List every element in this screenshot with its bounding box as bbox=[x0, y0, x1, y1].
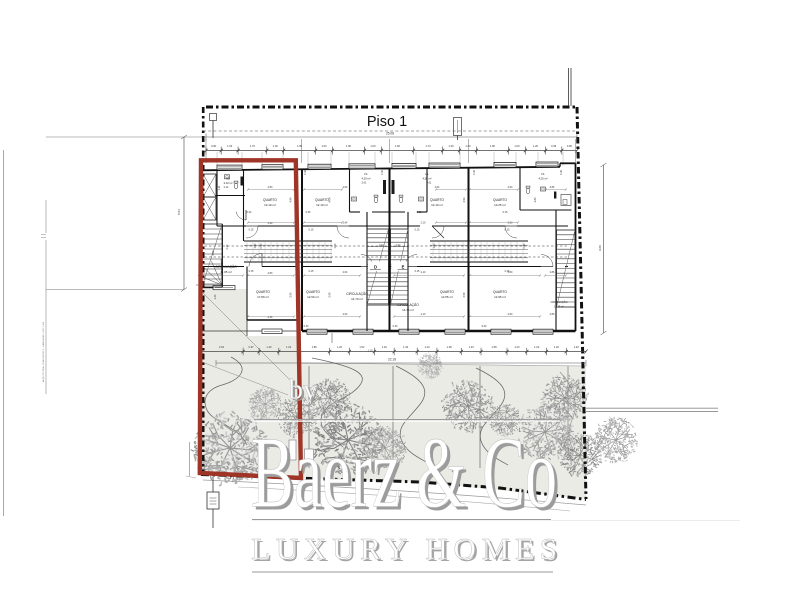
svg-text:I.S.: I.S. bbox=[425, 172, 430, 176]
svg-text:1.90: 1.90 bbox=[254, 243, 257, 248]
svg-text:0.80: 0.80 bbox=[523, 243, 526, 248]
svg-text:2.60: 2.60 bbox=[508, 186, 513, 189]
svg-text:13.10 m²: 13.10 m² bbox=[264, 203, 276, 207]
svg-text:2.83: 2.83 bbox=[268, 272, 273, 275]
svg-text:11.05 m²: 11.05 m² bbox=[220, 270, 232, 274]
svg-text:1.20: 1.20 bbox=[533, 144, 539, 148]
svg-text:3.99: 3.99 bbox=[329, 292, 332, 297]
svg-text:QUARTO: QUARTO bbox=[440, 290, 454, 294]
svg-text:QUARTO: QUARTO bbox=[493, 198, 507, 202]
svg-text:1.20: 1.20 bbox=[212, 250, 215, 255]
svg-text:1.89: 1.89 bbox=[297, 144, 303, 148]
svg-text:0.15: 0.15 bbox=[505, 270, 510, 273]
svg-text:Baerz & Co: Baerz & Co bbox=[251, 417, 557, 530]
svg-text:2.83: 2.83 bbox=[268, 186, 273, 189]
svg-text:QUARTO: QUARTO bbox=[315, 198, 329, 202]
svg-text:ARQUITETURA - PLANTA PISO 1 -: ARQUITETURA - PLANTA PISO 1 - HABITACAO … bbox=[42, 321, 45, 382]
svg-text:2.64: 2.64 bbox=[343, 222, 348, 225]
svg-text:1.20: 1.20 bbox=[425, 345, 431, 349]
svg-text:22.18: 22.18 bbox=[388, 358, 396, 362]
svg-text:E: E bbox=[402, 265, 405, 270]
svg-text:8.01: 8.01 bbox=[177, 209, 181, 215]
svg-text:1.20: 1.20 bbox=[514, 345, 520, 349]
svg-text:1.00: 1.00 bbox=[514, 144, 520, 148]
svg-text:0.15: 0.15 bbox=[415, 270, 420, 273]
svg-text:2.62: 2.62 bbox=[219, 345, 225, 349]
svg-text:1.90: 1.90 bbox=[346, 144, 352, 148]
svg-text:1.00: 1.00 bbox=[465, 144, 471, 148]
svg-text:17.80 m²: 17.80 m² bbox=[257, 295, 269, 299]
svg-text:0.42: 0.42 bbox=[560, 169, 563, 174]
svg-text:2.86: 2.86 bbox=[550, 186, 555, 189]
svg-text:CIRCULAÇÃO: CIRCULAÇÃO bbox=[215, 264, 237, 269]
svg-text:13.10 m²: 13.10 m² bbox=[431, 203, 443, 207]
svg-text:12.60 m²: 12.60 m² bbox=[307, 295, 319, 299]
svg-text:0.30: 0.30 bbox=[393, 325, 398, 328]
svg-text:1.00: 1.00 bbox=[227, 144, 233, 148]
svg-text:0.80: 0.80 bbox=[260, 243, 263, 248]
svg-text:4.20 m²: 4.20 m² bbox=[538, 176, 547, 180]
svg-text:3.90: 3.90 bbox=[290, 292, 293, 297]
svg-text:QUARTO: QUARTO bbox=[306, 290, 320, 294]
svg-text:1.20: 1.20 bbox=[286, 345, 292, 349]
svg-text:9.06: 9.06 bbox=[598, 245, 602, 251]
svg-text:2.42: 2.42 bbox=[226, 244, 229, 249]
svg-text:CIRCULAÇÃO: CIRCULAÇÃO bbox=[397, 302, 419, 307]
svg-text:25.08: 25.08 bbox=[386, 132, 394, 136]
svg-text:0.42: 0.42 bbox=[473, 169, 476, 174]
svg-text:2.64: 2.64 bbox=[343, 313, 348, 316]
svg-text:1.70: 1.70 bbox=[250, 144, 256, 148]
svg-text:0.15: 0.15 bbox=[309, 229, 314, 232]
svg-text:1.00: 1.00 bbox=[273, 144, 279, 148]
svg-text:12.95 m²: 12.95 m² bbox=[494, 295, 506, 299]
svg-text:4.20 m²: 4.20 m² bbox=[422, 176, 431, 180]
svg-text:0.90: 0.90 bbox=[567, 144, 573, 148]
svg-text:1.90: 1.90 bbox=[490, 144, 496, 148]
svg-text:1.11: 1.11 bbox=[218, 185, 221, 190]
svg-text:12.10 m²: 12.10 m² bbox=[316, 203, 328, 207]
svg-text:2.64: 2.64 bbox=[343, 186, 348, 189]
svg-text:2.10: 2.10 bbox=[421, 271, 426, 274]
svg-text:1.20: 1.20 bbox=[337, 345, 343, 349]
svg-text:2.64: 2.64 bbox=[343, 271, 348, 274]
svg-text:0.15: 0.15 bbox=[415, 229, 420, 232]
svg-text:0.15: 0.15 bbox=[505, 229, 510, 232]
svg-text:1.52: 1.52 bbox=[359, 345, 365, 349]
svg-text:1.20: 1.20 bbox=[574, 345, 580, 349]
svg-text:1.20: 1.20 bbox=[214, 294, 217, 299]
svg-text:2.60: 2.60 bbox=[508, 313, 513, 316]
svg-text:0.24: 0.24 bbox=[247, 211, 252, 214]
svg-text:1.20: 1.20 bbox=[469, 345, 475, 349]
svg-text:4.20 m²: 4.20 m² bbox=[361, 176, 370, 180]
svg-text:1.58: 1.58 bbox=[491, 345, 497, 349]
svg-text:13.25 m²: 13.25 m² bbox=[494, 203, 506, 207]
svg-text:1.20: 1.20 bbox=[554, 345, 560, 349]
svg-text:1.90: 1.90 bbox=[334, 243, 337, 248]
svg-text:0.42: 0.42 bbox=[304, 169, 307, 174]
svg-text:Piso 1: Piso 1 bbox=[367, 114, 407, 130]
svg-text:I.S.: I.S. bbox=[364, 172, 369, 176]
svg-text:1.00: 1.00 bbox=[379, 244, 384, 247]
svg-text:by: by bbox=[289, 374, 319, 406]
svg-text:3.10 m²: 3.10 m² bbox=[223, 181, 232, 185]
svg-text:D: D bbox=[374, 265, 377, 270]
svg-text:QUARTO: QUARTO bbox=[430, 198, 444, 202]
svg-text:9.30: 9.30 bbox=[482, 325, 487, 328]
svg-text:1.90: 1.90 bbox=[433, 243, 436, 248]
svg-text:1.48: 1.48 bbox=[447, 345, 453, 349]
svg-text:1.90: 1.90 bbox=[395, 144, 401, 148]
svg-text:1.00: 1.00 bbox=[370, 144, 376, 148]
svg-text:15.35 m²: 15.35 m² bbox=[554, 306, 564, 309]
svg-text:2.86: 2.86 bbox=[550, 313, 555, 316]
svg-text:0.15: 0.15 bbox=[417, 211, 422, 214]
svg-text:3.99: 3.99 bbox=[463, 292, 466, 297]
svg-text:1.00: 1.00 bbox=[449, 144, 455, 148]
svg-text:0.30: 0.30 bbox=[304, 325, 309, 328]
svg-text:4.84: 4.84 bbox=[534, 197, 537, 202]
svg-text:0.97: 0.97 bbox=[249, 345, 255, 349]
svg-text:I.S.: I.S. bbox=[541, 172, 546, 176]
svg-text:0.15: 0.15 bbox=[309, 270, 314, 273]
svg-text:4.84: 4.84 bbox=[290, 197, 293, 202]
svg-text:1.73: 1.73 bbox=[426, 144, 432, 148]
svg-text:0.36: 0.36 bbox=[306, 211, 311, 214]
svg-text:12.65 m²: 12.65 m² bbox=[441, 295, 453, 299]
svg-text:2.61: 2.61 bbox=[362, 181, 367, 184]
svg-text:0.15: 0.15 bbox=[503, 211, 508, 214]
svg-text:14.70 m²: 14.70 m² bbox=[351, 297, 363, 301]
svg-text:4.94: 4.94 bbox=[463, 197, 466, 202]
svg-text:2.64: 2.64 bbox=[435, 186, 440, 189]
svg-text:0.15: 0.15 bbox=[249, 270, 254, 273]
svg-text:4.04: 4.04 bbox=[329, 197, 332, 202]
svg-text:0.15: 0.15 bbox=[249, 229, 254, 232]
svg-text:1.20: 1.20 bbox=[534, 345, 540, 349]
svg-text:1.40: 1.40 bbox=[403, 345, 409, 349]
svg-text:QUARTO: QUARTO bbox=[256, 290, 270, 294]
svg-text:14.76 m²: 14.76 m² bbox=[402, 308, 414, 312]
svg-text:QUARTO: QUARTO bbox=[263, 198, 277, 202]
svg-text:1.89: 1.89 bbox=[312, 345, 318, 349]
svg-text:1.10: 1.10 bbox=[368, 350, 373, 353]
svg-text:0.96: 0.96 bbox=[551, 144, 557, 148]
svg-text:I.S.: I.S. bbox=[226, 177, 231, 181]
svg-text:1.00: 1.00 bbox=[321, 144, 327, 148]
svg-text:0.90: 0.90 bbox=[211, 144, 217, 148]
svg-text:2.13: 2.13 bbox=[421, 313, 426, 316]
svg-text:2.60: 2.60 bbox=[508, 222, 513, 225]
svg-text:1.20: 1.20 bbox=[266, 345, 272, 349]
svg-text:2.12: 2.12 bbox=[224, 186, 229, 189]
svg-text:CIRCULAÇÃO: CIRCULAÇÃO bbox=[346, 291, 368, 296]
svg-text:1.20: 1.20 bbox=[382, 345, 388, 349]
svg-text:2.86: 2.86 bbox=[550, 271, 555, 274]
svg-text:2.61: 2.61 bbox=[427, 181, 432, 184]
svg-text:2.10: 2.10 bbox=[421, 222, 426, 225]
svg-text:1.00: 1.00 bbox=[396, 244, 401, 247]
svg-text:QUARTO: QUARTO bbox=[493, 290, 507, 294]
svg-text:0.42: 0.42 bbox=[381, 169, 384, 174]
